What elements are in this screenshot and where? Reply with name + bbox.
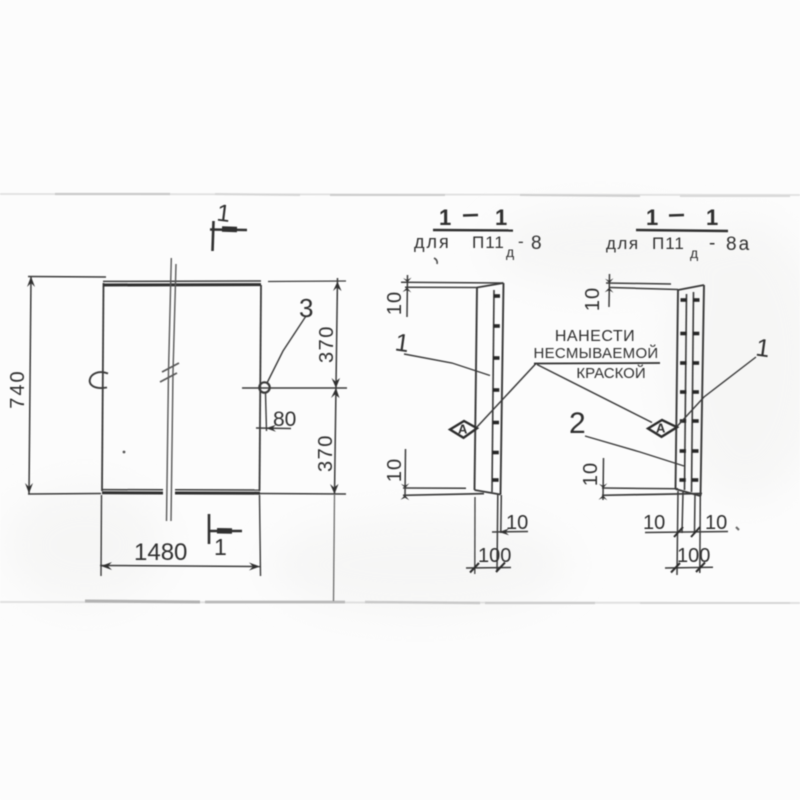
svg-text:НАНЕСТИ: НАНЕСТИ	[555, 328, 635, 345]
svg-text:10: 10	[384, 458, 406, 482]
svg-text:1: 1	[214, 534, 227, 560]
svg-text:3: 3	[299, 293, 313, 323]
svg-text:-: -	[709, 233, 715, 254]
svg-text:П11: П11	[472, 233, 505, 252]
svg-text:д: д	[690, 245, 698, 261]
svg-text:1480: 1480	[134, 539, 187, 566]
svg-text:10: 10	[506, 512, 528, 534]
svg-text:КРАСКОЙ: КРАСКОЙ	[576, 364, 645, 382]
svg-text:для: для	[606, 234, 640, 253]
svg-text:А: А	[656, 421, 666, 436]
svg-text:А: А	[458, 422, 468, 437]
svg-text:1: 1	[439, 205, 451, 230]
svg-text:1: 1	[495, 205, 507, 230]
svg-text:д: д	[506, 244, 514, 260]
svg-text:для: для	[414, 232, 451, 252]
svg-text:10: 10	[582, 287, 604, 311]
svg-text:370: 370	[315, 434, 337, 472]
svg-text:НЕСМЫВАЕМОЙ: НЕСМЫВАЕМОЙ	[533, 344, 658, 362]
svg-text:1: 1	[646, 205, 658, 230]
svg-text:10: 10	[643, 512, 665, 534]
svg-text:370: 370	[316, 325, 338, 363]
svg-text:2: 2	[569, 407, 586, 440]
svg-text:1: 1	[706, 205, 718, 230]
svg-text:-: -	[518, 232, 524, 251]
svg-text:80: 80	[273, 408, 296, 431]
svg-text:8а: 8а	[726, 234, 751, 255]
svg-text:100: 100	[478, 545, 511, 567]
svg-text:740: 740	[7, 369, 29, 408]
svg-text:10: 10	[705, 512, 727, 534]
svg-text:10: 10	[384, 291, 406, 315]
svg-text:8: 8	[531, 233, 542, 254]
svg-text:100: 100	[677, 545, 710, 567]
svg-text:П11: П11	[652, 234, 685, 253]
svg-text:10: 10	[580, 462, 602, 486]
